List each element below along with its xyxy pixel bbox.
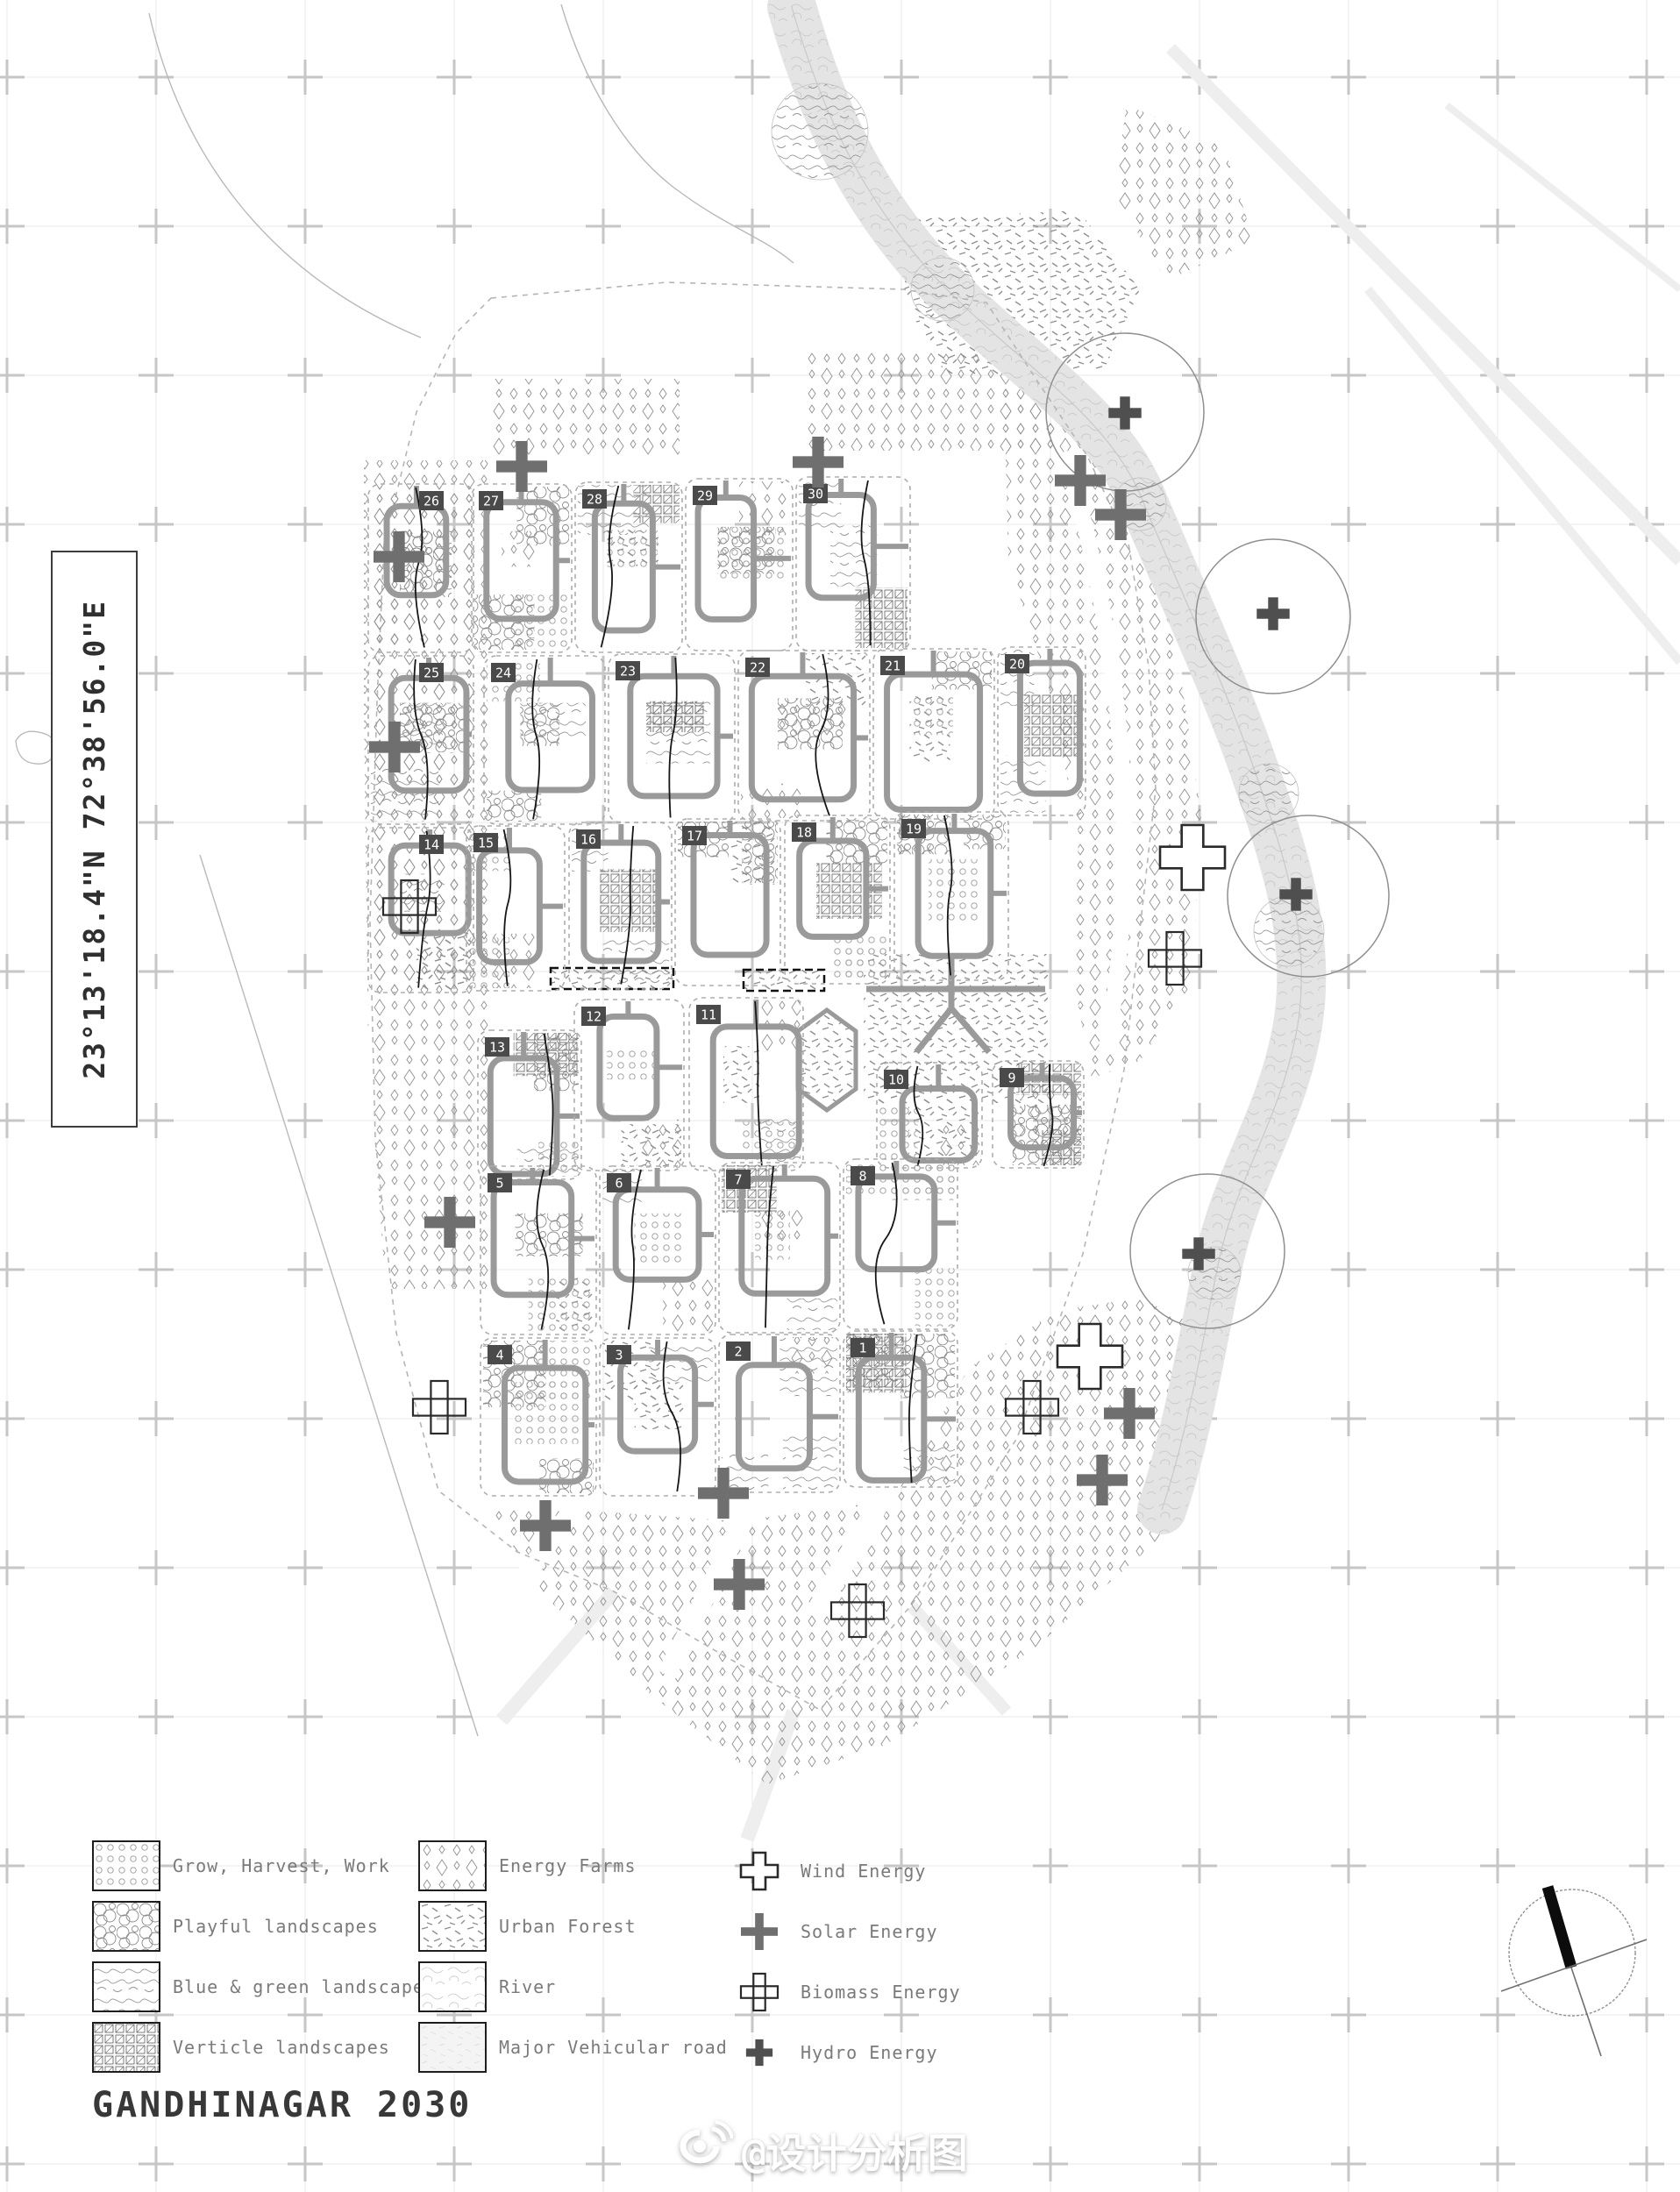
block-number: 17 bbox=[687, 829, 702, 844]
special-dashed-zone bbox=[744, 970, 824, 991]
biomass-energy-symbol bbox=[741, 1974, 778, 2011]
landuse-patch-energy bbox=[778, 698, 846, 736]
legend-landuse-column-1: Grow, Harvest, WorkPlayful landscapesBlu… bbox=[92, 1840, 436, 2082]
legend-label: Wind Energy bbox=[801, 1861, 926, 1882]
block-number: 1 bbox=[858, 1341, 866, 1356]
legend-swatch-playful bbox=[92, 1901, 160, 1952]
landuse-patch-grow bbox=[841, 950, 887, 981]
block-number: 12 bbox=[586, 1009, 602, 1025]
legend-item-wind-energy: Wind Energy bbox=[739, 1845, 961, 1897]
district-block-25: 25 bbox=[368, 656, 473, 824]
legend-swatch-forest bbox=[418, 1901, 487, 1952]
legend-item-vertical: Verticle landscapes bbox=[92, 2021, 436, 2074]
landuse-patch-grow bbox=[516, 1382, 583, 1443]
block-number: 24 bbox=[495, 665, 511, 681]
plan-title: GANDHINAGAR 2030 bbox=[92, 2085, 472, 2125]
watermark: @设计分析图 bbox=[668, 2120, 968, 2181]
landuse-patch-energy bbox=[755, 1210, 805, 1242]
block-number: 27 bbox=[483, 494, 499, 509]
block-number: 10 bbox=[888, 1072, 904, 1088]
landuse-patch-grow bbox=[929, 859, 982, 924]
landuse-patch-vertical bbox=[600, 869, 658, 932]
coordinates-badge: 23°13'18.4"N 72°38'56.0"E bbox=[51, 551, 138, 1128]
landuse-patch-bluegreen bbox=[787, 1299, 837, 1330]
legend-item-river: River bbox=[418, 1961, 728, 2013]
solar-energy-symbol bbox=[741, 1913, 778, 1950]
block-number: 19 bbox=[906, 822, 922, 837]
legend-item-hydro-energy: Hydro Energy bbox=[739, 2026, 961, 2079]
block-number: 26 bbox=[424, 494, 439, 509]
legend-label: Blue & green landscapes bbox=[173, 1976, 436, 1997]
landuse-patch-forest bbox=[723, 1046, 759, 1103]
solar-energy-icon bbox=[739, 1907, 779, 1956]
block-number: 14 bbox=[424, 837, 439, 853]
landuse-patch-grow bbox=[529, 1278, 594, 1332]
landuse-patch-bluegreen bbox=[520, 703, 586, 738]
watermark-text: @设计分析图 bbox=[742, 2122, 968, 2180]
landuse-patch-playful bbox=[474, 594, 534, 650]
block-number: 18 bbox=[796, 825, 812, 841]
block-number: 3 bbox=[615, 1348, 623, 1363]
landuse-patch-forest bbox=[416, 937, 471, 990]
block-number: 23 bbox=[620, 664, 636, 680]
legend-swatch-road bbox=[418, 2022, 487, 2073]
legend-label: Energy Farms bbox=[499, 1855, 637, 1876]
block-number: 22 bbox=[750, 660, 765, 676]
coordinates-text: 23°13'18.4"N 72°38'56.0"E bbox=[77, 600, 111, 1079]
landuse-patch-energy bbox=[502, 531, 539, 567]
legend-item-energy: Energy Farms bbox=[418, 1840, 728, 1892]
block-number: 5 bbox=[495, 1176, 503, 1192]
legend-item-forest: Urban Forest bbox=[418, 1900, 728, 1953]
biomass-energy-icon bbox=[739, 1968, 779, 2017]
legend-item-grow: Grow, Harvest, Work bbox=[92, 1840, 436, 1892]
legend-item-bluegreen: Blue & green landscapes bbox=[92, 1961, 436, 2013]
block-number: 28 bbox=[587, 492, 602, 508]
legend-swatch-river bbox=[418, 1961, 487, 2012]
legend-item-playful: Playful landscapes bbox=[92, 1900, 436, 1953]
legend-label: River bbox=[499, 1976, 556, 1997]
weibo-logo-icon bbox=[668, 2120, 733, 2181]
river-contour-spot bbox=[1254, 896, 1324, 966]
landuse-patch-grow bbox=[635, 1213, 684, 1266]
hydro-energy-icon bbox=[739, 2028, 779, 2077]
landuse-patch-bluegreen bbox=[400, 703, 443, 744]
landuse-patch-grow bbox=[915, 1268, 955, 1327]
legend-label: Playful landscapes bbox=[173, 1916, 379, 1937]
block-number: 13 bbox=[489, 1040, 505, 1056]
legend-label: Verticle landscapes bbox=[173, 2037, 390, 2058]
river-contour-spot bbox=[772, 83, 868, 180]
legend-swatch-grow bbox=[92, 1840, 160, 1891]
landuse-patch-bluegreen bbox=[646, 701, 690, 740]
legend-landuse-column-2: Energy FarmsUrban ForestRiverMajor Vehic… bbox=[418, 1840, 728, 2082]
landuse-patch-energy bbox=[663, 1279, 713, 1332]
block-number: 2 bbox=[734, 1344, 742, 1360]
landuse-patch-grow bbox=[879, 1104, 917, 1165]
landuse-patch-playful bbox=[718, 527, 776, 573]
river-contour-spot bbox=[1239, 764, 1299, 823]
legend-item-road: Major Vehicular road bbox=[418, 2021, 728, 2074]
block-number: 7 bbox=[734, 1172, 742, 1188]
landuse-patch-playful bbox=[743, 822, 778, 883]
legend-swatch-energy bbox=[418, 1840, 487, 1891]
landuse-patch-bluegreen bbox=[371, 766, 438, 822]
legend-label: Hydro Energy bbox=[801, 2042, 938, 2063]
legend-item-solar-energy: Solar Energy bbox=[739, 1905, 961, 1958]
legend-label: Solar Energy bbox=[801, 1921, 938, 1942]
block-number: 29 bbox=[697, 488, 713, 504]
landuse-patch-grow bbox=[743, 1121, 801, 1168]
poster-canvas: 2627282930252423222120141516171819131211… bbox=[0, 0, 1680, 2192]
block-number: 16 bbox=[580, 832, 596, 848]
block-number: 30 bbox=[808, 487, 823, 502]
legend-label: Urban Forest bbox=[499, 1916, 637, 1937]
block-number: 9 bbox=[1007, 1071, 1015, 1086]
landuse-patch-grow bbox=[909, 696, 952, 735]
district-block-26: 26 bbox=[368, 484, 473, 652]
legend-label: Biomass Energy bbox=[801, 1982, 961, 2003]
landuse-patch-forest bbox=[622, 1124, 681, 1168]
hexagon-plot bbox=[798, 1010, 856, 1110]
legend-label: Grow, Harvest, Work bbox=[173, 1855, 390, 1876]
block-number: 21 bbox=[885, 658, 901, 674]
hydro-energy-symbol bbox=[746, 2039, 772, 2066]
block-number: 25 bbox=[424, 665, 439, 681]
river-contour-spot bbox=[911, 258, 974, 321]
legend-label: Major Vehicular road bbox=[499, 2037, 728, 2058]
wind-energy-symbol bbox=[741, 1853, 778, 1890]
block-number: 15 bbox=[478, 836, 494, 851]
wind-energy-icon bbox=[739, 1847, 779, 1896]
block-number: 20 bbox=[1009, 657, 1025, 673]
legend-swatch-bluegreen bbox=[92, 1961, 160, 2012]
block-number: 11 bbox=[701, 1007, 716, 1023]
block-number: 4 bbox=[495, 1348, 503, 1363]
landuse-patch-playful bbox=[901, 1334, 955, 1398]
landuse-patch-bluegreen bbox=[830, 525, 877, 586]
landuse-patch-grow bbox=[608, 1048, 662, 1080]
block-number: 6 bbox=[615, 1176, 623, 1192]
block-number: 8 bbox=[858, 1169, 866, 1185]
legend-energy-column: Wind EnergySolar EnergyBiomass EnergyHyd… bbox=[739, 1840, 961, 2087]
legend-item-biomass-energy: Biomass Energy bbox=[739, 1966, 961, 2018]
landuse-patch-playful bbox=[932, 651, 992, 689]
legend-swatch-vertical bbox=[92, 2022, 160, 2073]
